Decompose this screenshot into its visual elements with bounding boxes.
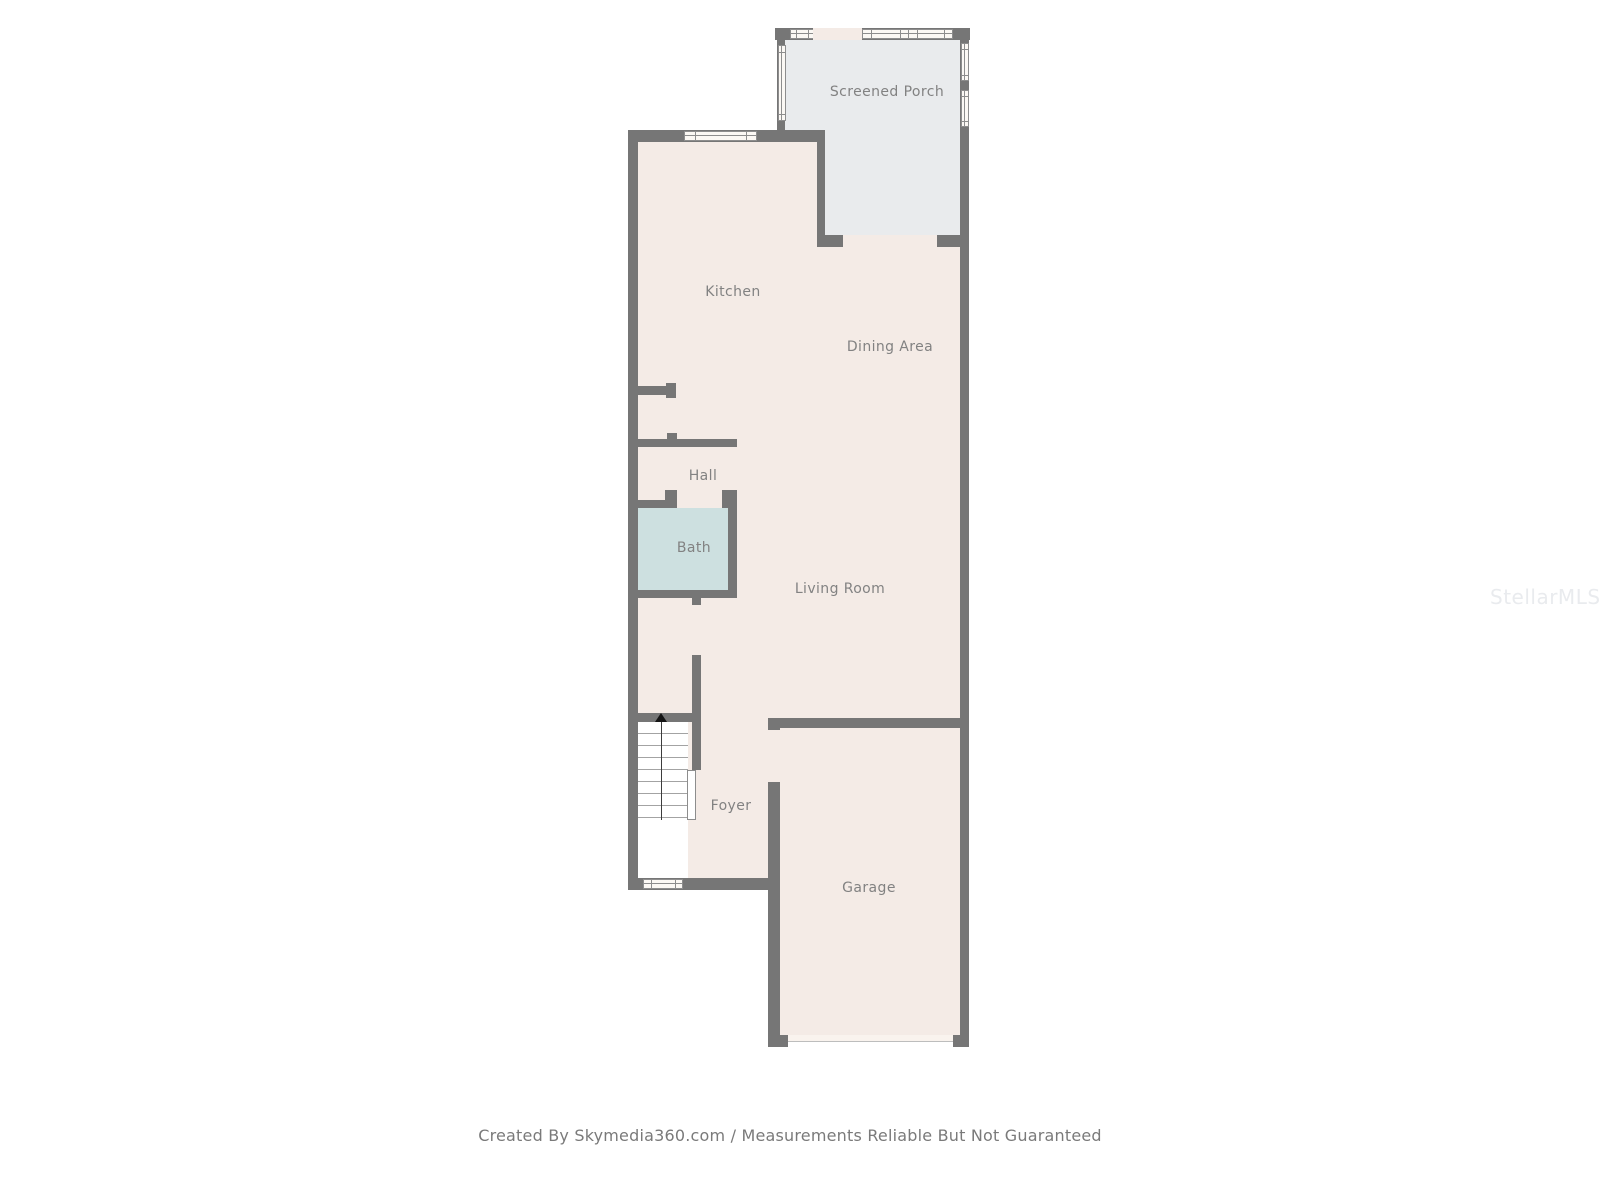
- porch-right-window-2: [961, 90, 969, 127]
- wall-garage-top: [770, 718, 968, 728]
- wall-garage-bottom-left: [768, 1035, 788, 1047]
- porch-top-window-1: [790, 29, 814, 39]
- porch-right-window-1: [961, 43, 969, 81]
- wall-hall-top-jamb: [667, 433, 677, 439]
- room-label-foyer: Foyer: [711, 798, 752, 814]
- stair-tread: [638, 805, 688, 806]
- stair-railing: [687, 770, 696, 820]
- wall-bath-bottom: [628, 590, 737, 598]
- floor-plan: Screened Porch Kitchen Dining Area Hall …: [0, 0, 1600, 1200]
- garage-door: [788, 1035, 953, 1042]
- footer-credit: Created By Skymedia360.com / Measurement…: [0, 1126, 1580, 1145]
- porch-screen-opening: [813, 28, 862, 40]
- stair-tread: [638, 745, 688, 746]
- porch-left-window: [778, 45, 786, 121]
- porch-top-window-3: [908, 29, 953, 39]
- wall-garage-left-upper: [768, 718, 780, 730]
- wall-bath-top-left: [628, 500, 667, 508]
- wall-left-exterior: [628, 130, 638, 890]
- wall-right-exterior: [960, 28, 969, 1047]
- floor-screened-porch-bottom: [825, 142, 960, 235]
- wall-closet-stub: [692, 598, 701, 605]
- room-label-dining-area: Dining Area: [847, 339, 933, 355]
- room-label-hall: Hall: [689, 468, 718, 484]
- stairs: [638, 722, 688, 820]
- wall-garage-bottom-right: [953, 1035, 969, 1047]
- wall-kitchen-hall-stub-cap: [666, 383, 676, 398]
- wall-bath-door-jamb: [665, 490, 677, 508]
- stair-tread: [638, 769, 688, 770]
- wall-kitchen-hall-stub: [628, 386, 668, 395]
- porch-top-window-2: [862, 29, 909, 39]
- kitchen-window: [684, 131, 757, 141]
- wall-hall-top: [628, 439, 737, 447]
- entry-window: [643, 879, 683, 889]
- stellar-mls-watermark: StellarMLS: [1490, 585, 1600, 609]
- stair-tread: [638, 781, 688, 782]
- wall-garage-left-lower: [768, 782, 780, 1047]
- room-label-screened-porch: Screened Porch: [830, 84, 944, 100]
- stairs-direction-line: [661, 722, 662, 820]
- stair-tread: [638, 757, 688, 758]
- wall-porch-stub-right: [937, 235, 960, 247]
- wall-porch-stub-left: [817, 235, 843, 247]
- stair-tread: [638, 733, 688, 734]
- room-label-bath: Bath: [677, 540, 711, 556]
- wall-porch-inner-left: [817, 133, 825, 247]
- room-label-garage: Garage: [842, 880, 896, 896]
- room-label-kitchen: Kitchen: [705, 284, 760, 300]
- stair-tread: [638, 793, 688, 794]
- stair-tread: [638, 817, 688, 818]
- wall-bath-right: [728, 490, 737, 598]
- stairs-up-arrow: [655, 713, 667, 722]
- room-label-living-room: Living Room: [795, 581, 885, 597]
